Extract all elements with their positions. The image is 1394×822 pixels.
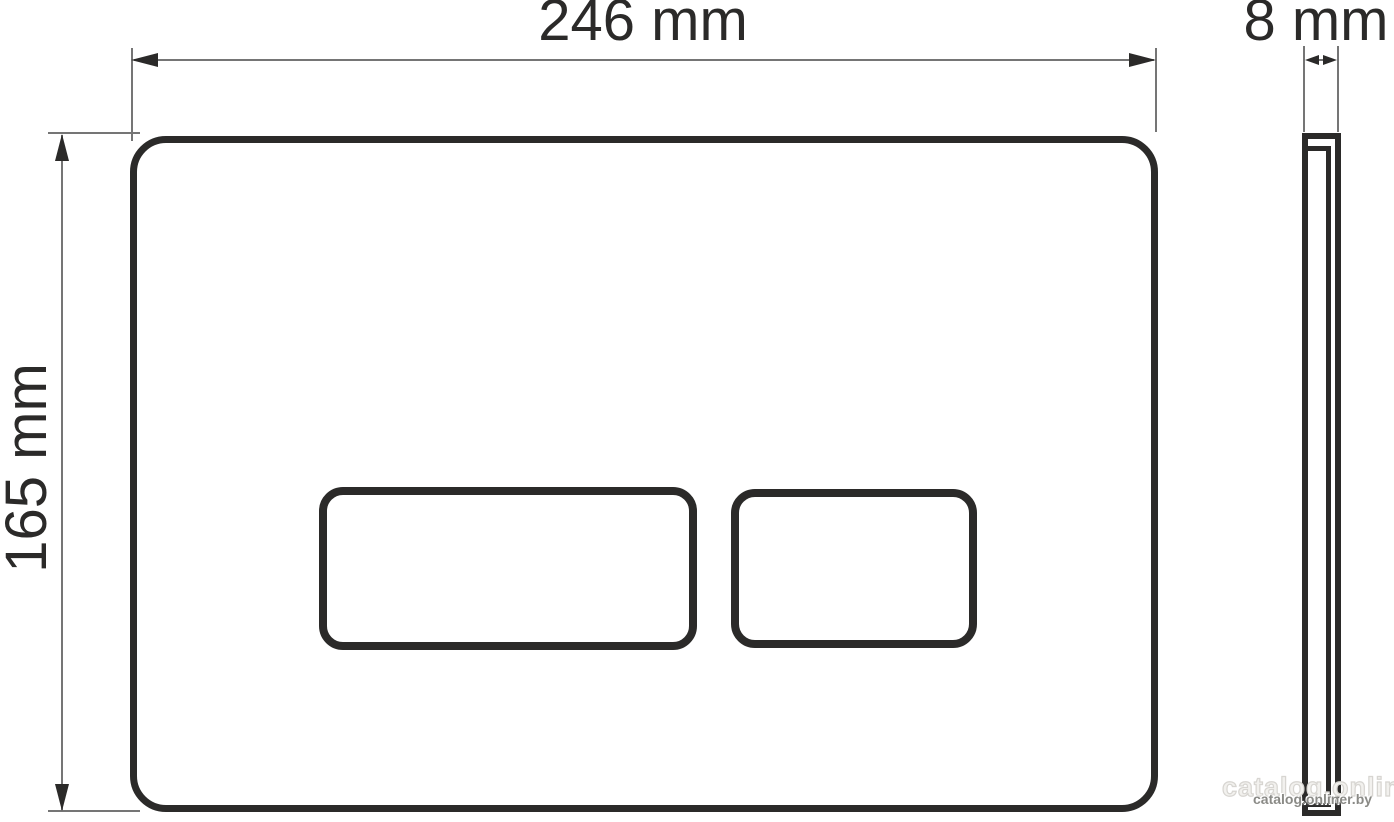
side-bottom-cap-line — [1302, 810, 1341, 816]
width-arrow-right-icon — [1129, 53, 1156, 67]
depth-dimension-label: 8 mm — [1244, 0, 1389, 50]
flush-button-large — [319, 487, 697, 650]
height-dimension-label: 165 mm — [0, 363, 56, 573]
width-dimension-line — [134, 59, 1154, 61]
width-arrow-left-icon — [131, 53, 158, 67]
width-dimension-label: 246 mm — [538, 0, 748, 50]
side-view-profile — [1302, 133, 1341, 816]
depth-arrow-left-icon — [1305, 55, 1319, 65]
height-arrow-top-icon — [55, 134, 69, 161]
side-back-frame-line — [1335, 133, 1341, 816]
depth-extension-line-right — [1337, 46, 1339, 132]
side-inner-vertical-line — [1326, 146, 1331, 807]
technical-drawing-canvas: 246 mm 8 mm 165 mm catalog.onliner.by ca… — [0, 0, 1394, 822]
watermark-text: catalog.onliner.by — [1253, 791, 1372, 807]
side-inner-top-line — [1302, 146, 1331, 151]
height-arrow-bottom-icon — [55, 784, 69, 811]
front-view-plate — [130, 136, 1158, 812]
height-dimension-line — [61, 135, 63, 810]
depth-arrow-right-icon — [1323, 55, 1337, 65]
side-top-cap-line — [1302, 133, 1341, 139]
side-front-face-line — [1302, 133, 1308, 816]
flush-button-small — [731, 489, 977, 648]
